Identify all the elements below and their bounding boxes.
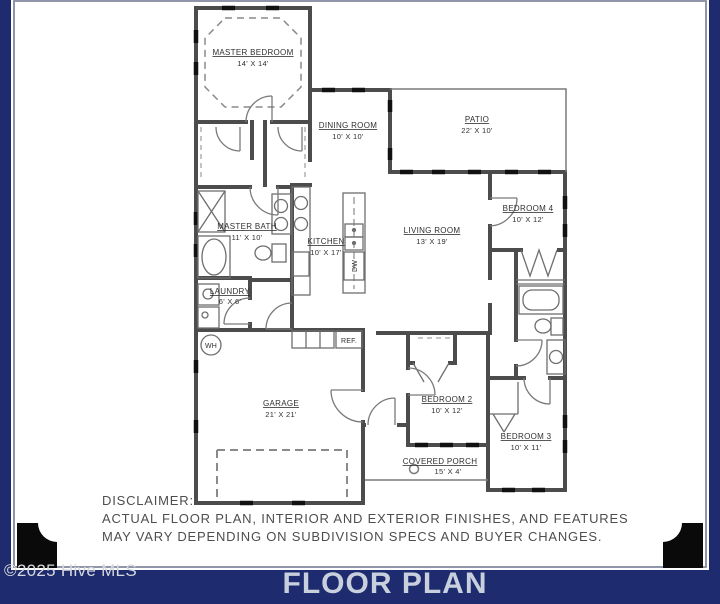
label-master-bath: MASTER BATH 11' X 10' [217,222,277,242]
hall-toilet-bowl [535,319,551,333]
sink-drain-1 [353,229,356,232]
room-name: DINING ROOM [319,121,377,130]
room-dims: 6' X 6' [219,297,242,306]
interior-walls [196,90,565,445]
washer-box [198,307,219,328]
hall-sink [550,351,563,364]
room-dims: 10' X 12' [431,406,463,415]
washer-knob [202,312,208,318]
bed3-closet-walls [490,382,518,414]
room-dims: 21' X 21' [265,410,297,419]
label-dining-room: DINING ROOM 10' X 10' [319,121,377,141]
hall-closet-door [266,303,292,329]
room-dims: 11' X 10' [232,233,263,242]
label-master-bedroom: MASTER BEDROOM 14' X 14' [212,48,293,68]
room-name: MASTER BATH [217,222,277,231]
bedroom2-door [408,368,435,395]
hall-toilet-tank [551,318,563,335]
toilet-bowl [255,246,271,260]
sink-drain-2 [353,242,356,245]
cooktop-1 [295,197,308,210]
room-name: KITCHEN [307,237,344,246]
master-tub [198,236,230,278]
room-labels: MASTER BEDROOM 14' X 14' DINING ROOM 10'… [205,48,554,476]
label-bedroom-3: BEDROOM 3 10' X 11' [501,432,552,452]
disclaimer-line1: ACTUAL FLOOR PLAN, INTERIOR AND EXTERIOR… [102,510,628,528]
bedroom3-closet [490,382,518,432]
room-name: LIVING ROOM [404,226,461,235]
room-dims: 10' X 11' [511,443,542,452]
cooktop-2 [295,218,308,231]
room-dims: 10' X 17' [310,248,342,257]
label-bedroom-4: BEDROOM 4 10' X 12' [503,204,554,224]
master-bedroom-door [246,96,272,122]
disclaimer-line2: MAY VARY DEPENDING ON SUBDIVISION SPECS … [102,528,628,546]
hall-bath-door [516,340,542,366]
room-dims: 22' X 10' [461,126,493,135]
porch-outline [365,465,488,481]
room-name: MASTER BEDROOM [212,48,293,57]
bed3-closet-doors [493,414,515,432]
corner-ornament-right [663,523,703,568]
laundry-walls [196,278,290,330]
front-door-gap [366,420,397,430]
room-dims: 13' X 19' [416,237,448,246]
label-patio: PATIO 22' X 10' [461,115,493,135]
sink-bowl-1 [275,200,288,213]
floor-plan-page: MASTER BEDROOM 14' X 14' DINING ROOM 10'… [0,0,720,604]
room-name: BEDROOM 2 [422,395,473,404]
disclaimer-label: DISCLAIMER: [102,492,628,510]
master-toilet [255,244,286,262]
room-dims: 10' X 12' [512,215,544,224]
bedroom2-closet-doors [413,363,449,382]
room-dims: 15' X 4' [435,467,462,476]
bedroom3-door [524,378,550,404]
toilet-tank [272,244,286,262]
dishwasher-label: DW [352,260,359,272]
room-name: BEDROOM 3 [501,432,552,441]
room-name: BEDROOM 4 [503,204,554,213]
room-name: PATIO [465,115,489,124]
room-dims: 10' X 10' [332,132,364,141]
mls-watermark: ©2025 Hive MLS [4,561,137,581]
garage-entry-door [331,390,363,422]
room-dims: 14' X 14' [237,59,269,68]
water-heater-label: WH [205,343,217,350]
master-bath-door [250,187,278,215]
closet1-door [216,127,240,151]
room-name: GARAGE [263,399,299,408]
refrigerator-label: REF. [341,338,357,345]
label-bedroom-2: BEDROOM 2 10' X 12' [422,395,473,415]
label-living-room: LIVING ROOM 13' X 19' [404,226,461,246]
tub-surround [198,236,230,278]
label-kitchen: KITCHEN 10' X 17' [307,237,344,257]
disclaimer-block: DISCLAIMER: ACTUAL FLOOR PLAN, INTERIOR … [102,492,628,546]
bathtub-inner [523,290,559,310]
label-laundry: LAUNDRY 6' X 6' [210,287,251,306]
range-box [293,252,309,276]
closet2-door [278,127,302,151]
pantry-shelves [306,331,320,348]
pantry-box [292,331,334,348]
room-name: LAUNDRY [210,287,251,296]
room-name: COVERED PORCH [403,457,478,466]
hall-bath-fixtures [516,250,565,374]
bath-closet-bifold [521,250,557,276]
bath-closet-shelf [516,280,565,284]
label-garage: GARAGE 21' X 21' [263,399,299,419]
tub-bowl [202,239,226,275]
